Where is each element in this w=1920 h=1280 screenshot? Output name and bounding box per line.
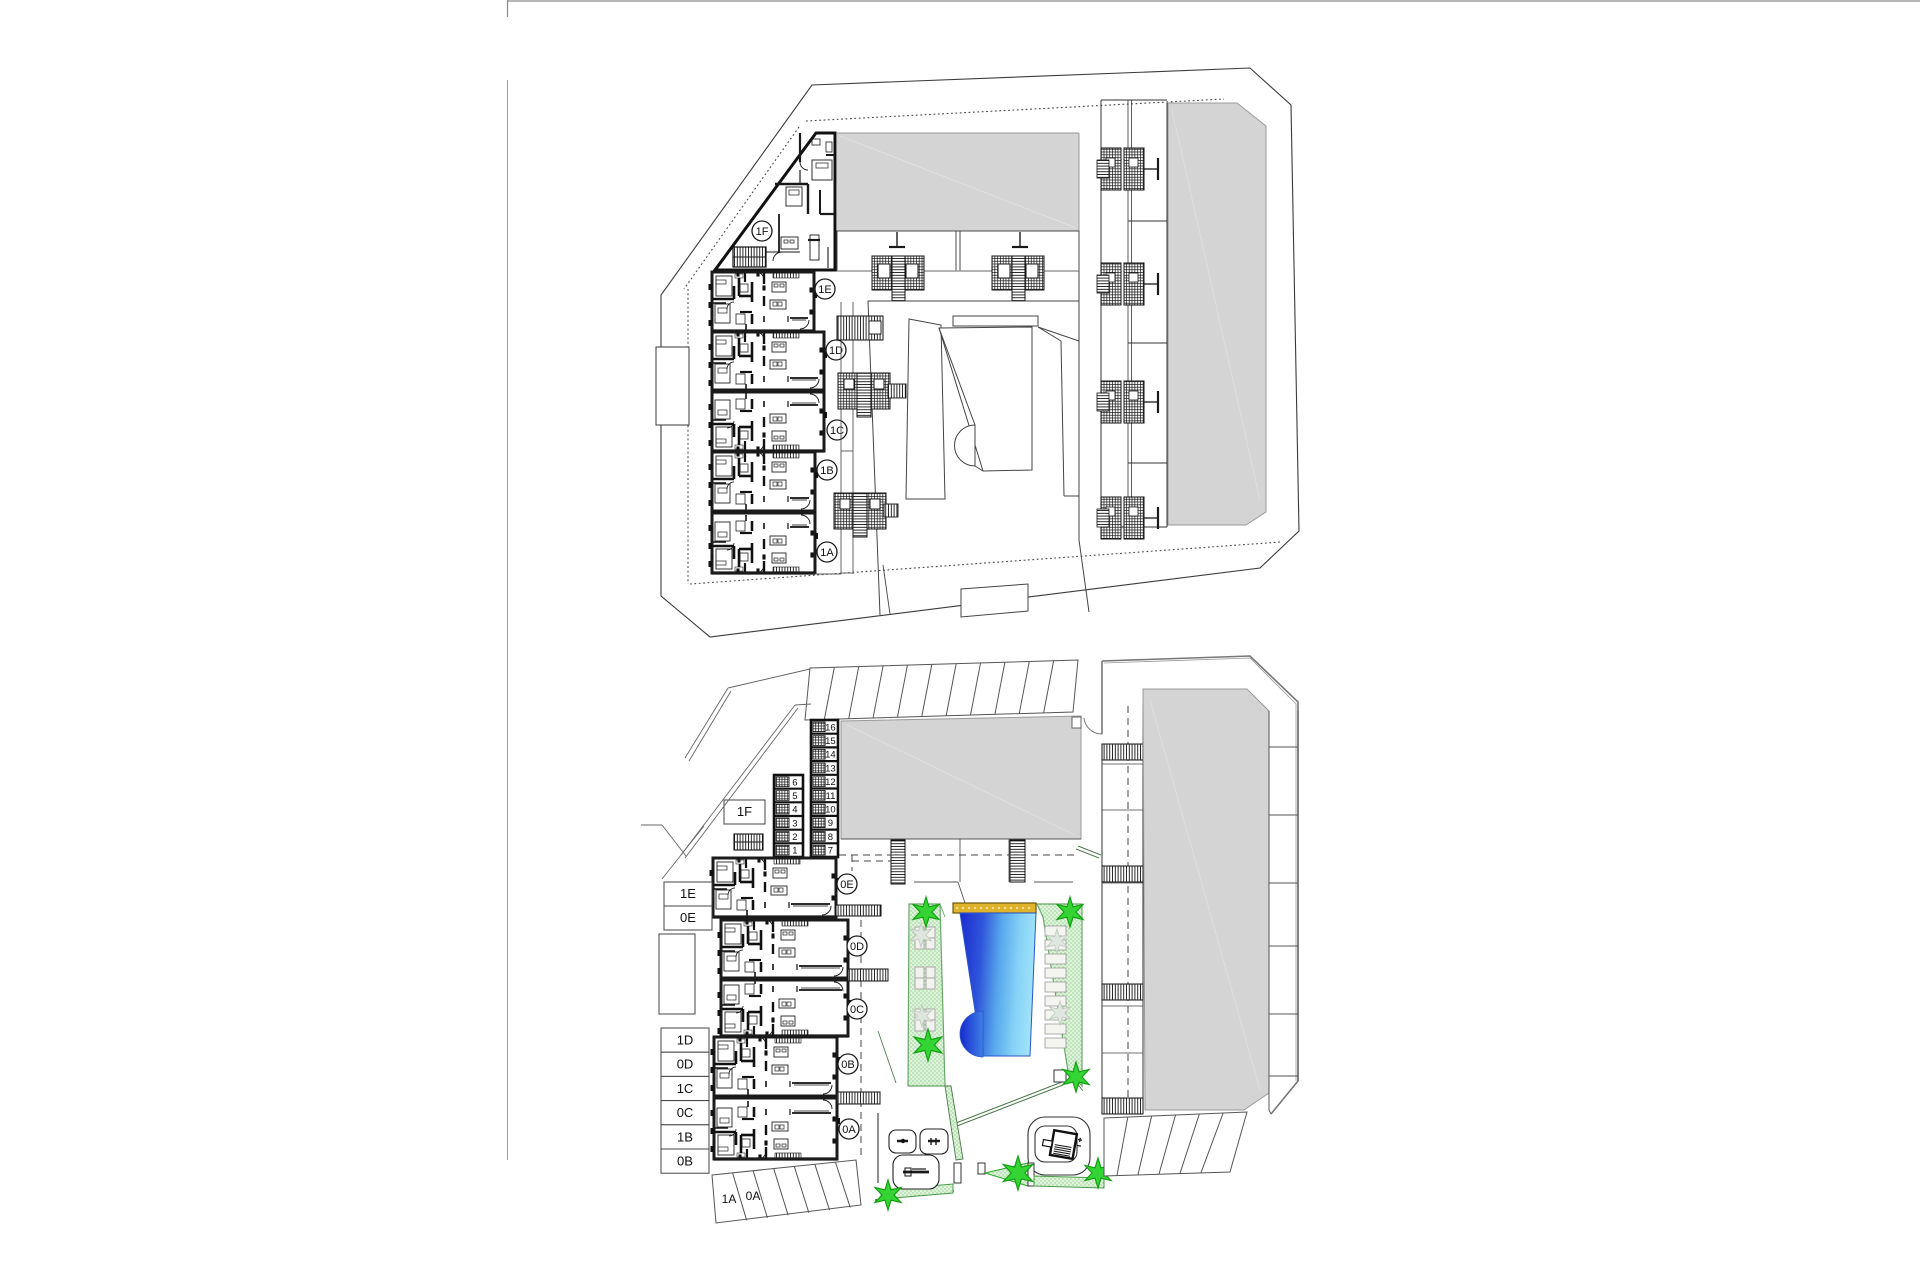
svg-text:1D: 1D xyxy=(677,1033,694,1048)
svg-text:1: 1 xyxy=(792,846,797,857)
svg-text:1A: 1A xyxy=(722,1192,737,1206)
svg-text:8: 8 xyxy=(828,832,833,843)
svg-text:7: 7 xyxy=(828,846,833,857)
svg-text:11: 11 xyxy=(826,791,836,802)
svg-text:3: 3 xyxy=(792,818,797,829)
svg-text:1A: 1A xyxy=(820,547,834,559)
svg-text:1E: 1E xyxy=(818,284,831,296)
svg-text:0A: 0A xyxy=(842,1124,856,1136)
svg-text:0B: 0B xyxy=(841,1059,854,1071)
svg-text:14: 14 xyxy=(825,750,836,761)
svg-text:0D: 0D xyxy=(677,1057,694,1072)
svg-text:9: 9 xyxy=(828,818,833,829)
svg-text:1F: 1F xyxy=(756,226,769,238)
svg-text:16: 16 xyxy=(825,722,836,733)
svg-text:15: 15 xyxy=(825,736,836,747)
svg-text:0D: 0D xyxy=(850,941,864,953)
svg-text:1B: 1B xyxy=(820,465,833,477)
svg-text:0B: 0B xyxy=(677,1154,693,1169)
svg-text:0E: 0E xyxy=(680,910,696,925)
svg-text:12: 12 xyxy=(825,777,836,788)
svg-text:6: 6 xyxy=(792,777,797,788)
svg-text:1C: 1C xyxy=(677,1081,694,1096)
svg-text:5: 5 xyxy=(792,791,797,802)
svg-text:0A: 0A xyxy=(746,1189,761,1203)
svg-text:13: 13 xyxy=(825,763,836,774)
svg-text:1E: 1E xyxy=(680,886,696,901)
svg-text:1C: 1C xyxy=(830,425,844,437)
svg-text:0C: 0C xyxy=(850,1004,864,1016)
svg-text:10: 10 xyxy=(825,804,836,815)
svg-text:0E: 0E xyxy=(840,879,853,891)
svg-text:1B: 1B xyxy=(677,1129,693,1144)
svg-text:0C: 0C xyxy=(677,1105,694,1120)
svg-text:2: 2 xyxy=(792,832,797,843)
svg-text:4: 4 xyxy=(792,805,797,816)
svg-text:1F: 1F xyxy=(737,804,752,819)
